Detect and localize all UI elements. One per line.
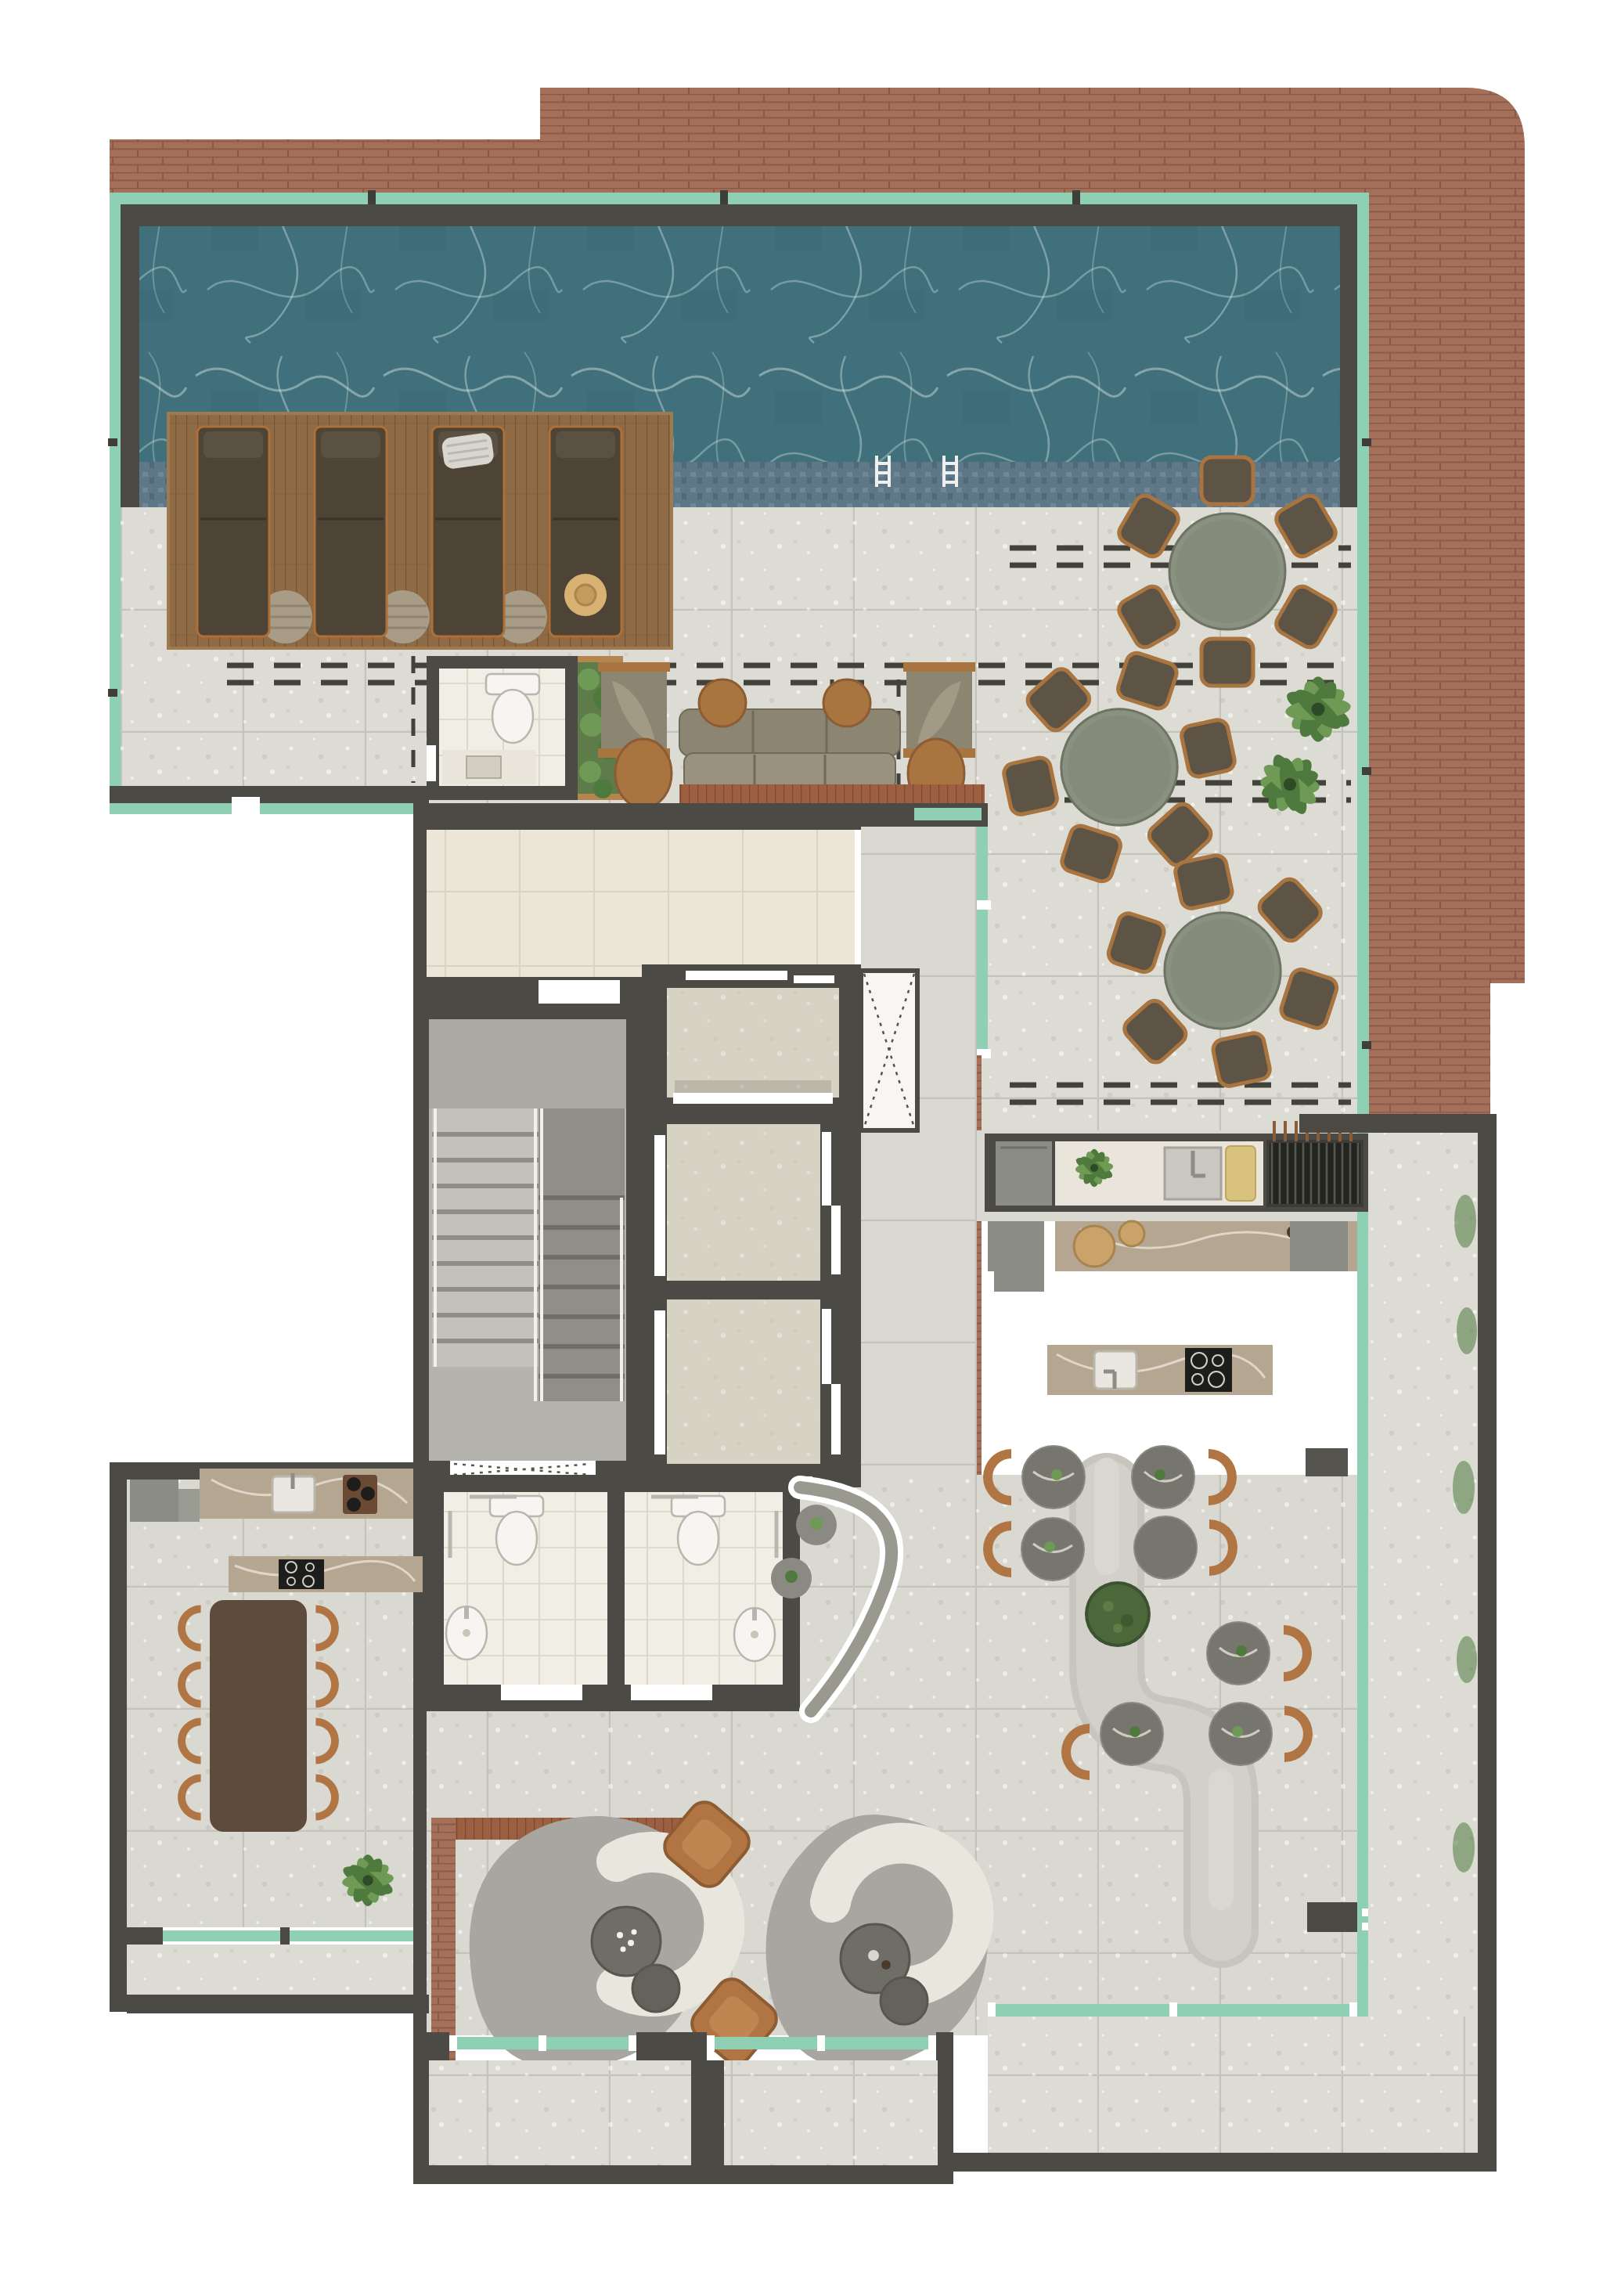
sun-hat	[564, 574, 607, 616]
sun-lounger	[315, 427, 387, 636]
stair-core	[413, 1004, 642, 1476]
stair-landing-top	[429, 1019, 626, 1108]
terrace-gate	[232, 797, 260, 816]
elevator-3	[654, 1299, 841, 1464]
round-side-table	[823, 679, 870, 726]
stair-flight-right	[539, 1108, 625, 1401]
balcony-pier	[691, 2060, 724, 2165]
elevator-1	[667, 971, 839, 1104]
floor-plan-stage	[0, 0, 1603, 2296]
bar-module-left	[988, 1221, 1044, 1271]
induction-hob	[279, 1559, 324, 1589]
serving-board	[1074, 1226, 1115, 1267]
wc-sink	[466, 756, 501, 778]
sofa-lounge	[413, 1796, 988, 2073]
serving-board	[1119, 1221, 1144, 1246]
pool-wc	[427, 656, 578, 800]
dining-island	[229, 1556, 423, 1592]
moss-planter	[1085, 1581, 1151, 1647]
dining-glass-door	[163, 1930, 280, 1941]
induction-hob	[1185, 1348, 1232, 1392]
bathroom-door	[501, 1685, 582, 1700]
equipment-unit	[1306, 1448, 1348, 1476]
pool-coping-right	[1340, 204, 1357, 510]
oval-side-table	[615, 739, 672, 808]
dining-table	[210, 1600, 307, 1832]
bar-module-right	[1290, 1221, 1348, 1271]
kitchen-island	[1047, 1345, 1273, 1395]
fridge	[996, 1141, 1052, 1206]
sun-lounger	[197, 427, 269, 636]
lobby-glass-wall	[977, 827, 988, 1058]
pool-glass-balustrade-left	[110, 193, 121, 811]
wc-door	[427, 745, 436, 781]
stair-door-threshold	[539, 980, 620, 1005]
terrace-glass-balustrade-right	[1357, 193, 1369, 1212]
pool-deck	[168, 413, 672, 648]
stair-flight-left	[432, 1108, 539, 1367]
bench-backrest	[1094, 1458, 1119, 1575]
pool-glass-balustrade-top	[116, 193, 1363, 204]
pool-coping-top	[121, 204, 1357, 226]
bathroom-right	[625, 1492, 783, 1700]
bench-backrest	[1209, 1769, 1234, 1910]
elevator-2	[654, 1124, 841, 1281]
cutting-board	[1226, 1146, 1255, 1201]
corridor-north-wall	[427, 803, 988, 830]
terrace-glass-door	[914, 808, 982, 820]
bathroom-door	[631, 1685, 712, 1700]
round-side-table	[699, 679, 746, 726]
bathrooms	[427, 1475, 800, 1711]
private-dining-wing	[110, 1462, 429, 2013]
glass-door-pier	[1307, 1902, 1357, 1932]
dining-glass-door	[290, 1930, 413, 1941]
vent-shaft	[861, 971, 917, 1130]
bathroom-left	[444, 1492, 607, 1700]
hall-glass-east	[1357, 1212, 1368, 2017]
floor-plan	[0, 0, 1603, 2296]
fridge	[130, 1480, 178, 1522]
wood-bench	[679, 784, 985, 803]
gas-cooktop	[343, 1475, 377, 1514]
